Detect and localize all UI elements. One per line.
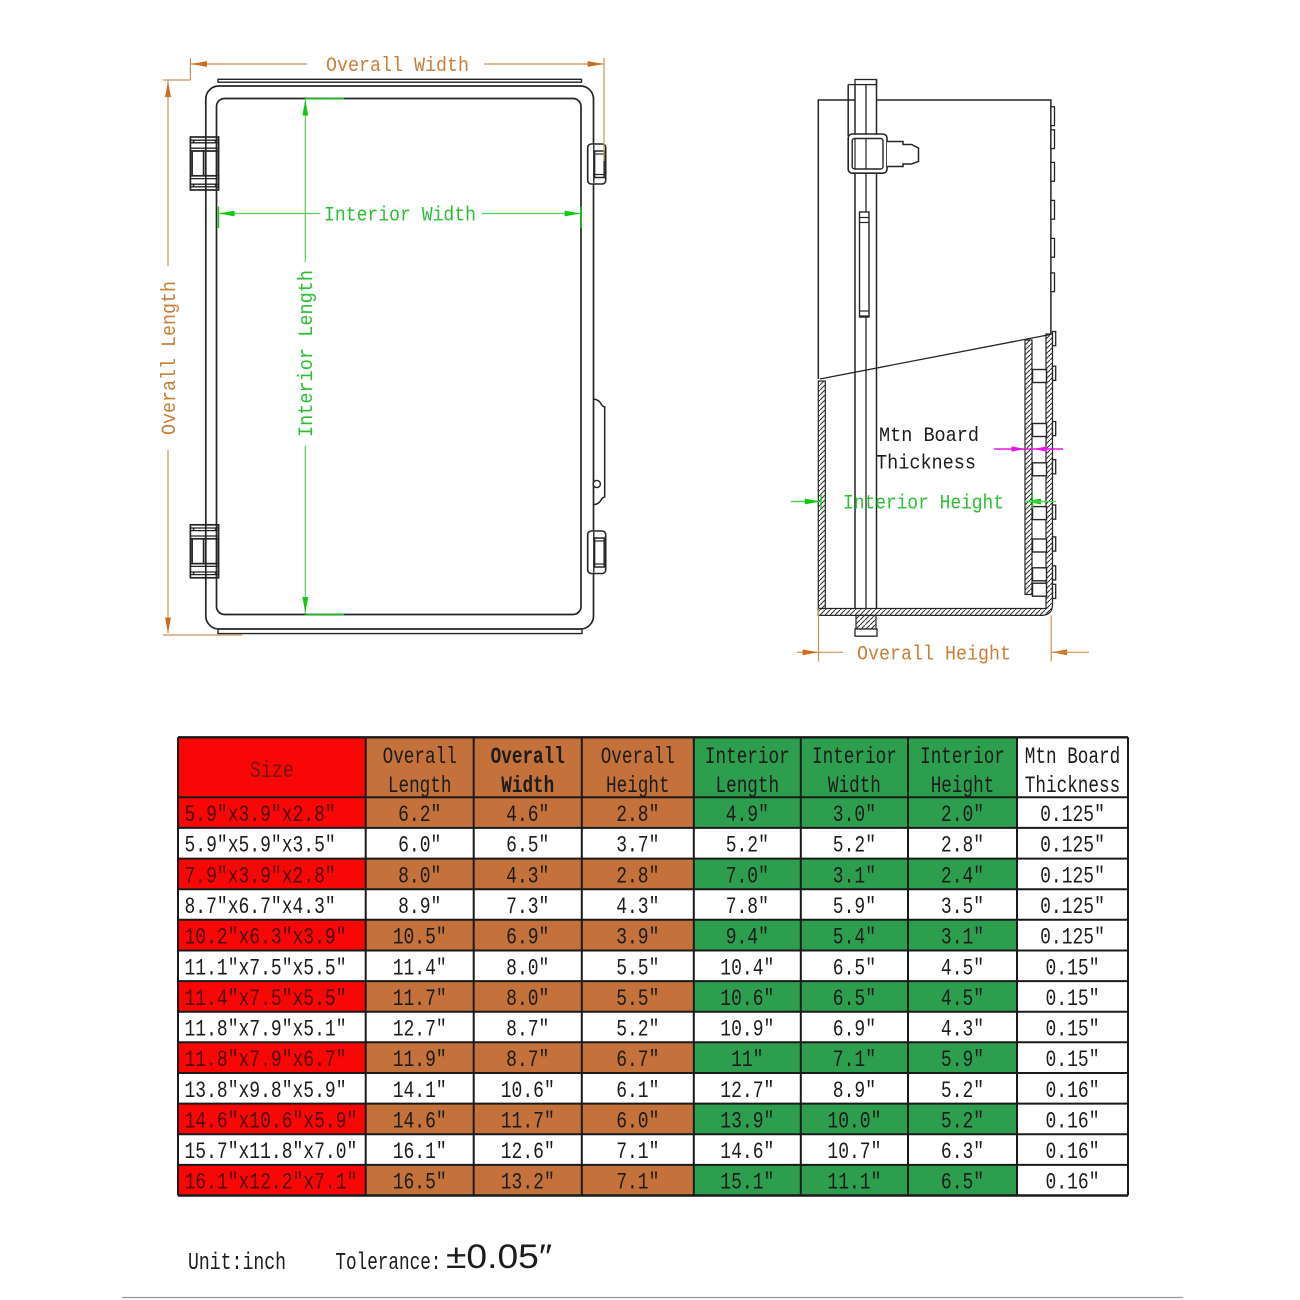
svg-text:Overall: Overall	[383, 744, 457, 770]
svg-text:7.0″: 7.0″	[726, 863, 769, 889]
svg-text:12.7″: 12.7″	[720, 1078, 774, 1104]
svg-text:16.1″: 16.1″	[393, 1139, 447, 1165]
svg-text:0.16″: 0.16″	[1046, 1108, 1100, 1134]
svg-text:Interior Height: Interior Height	[843, 493, 1004, 516]
svg-text:6.5″: 6.5″	[506, 833, 549, 859]
svg-text:Width: Width	[501, 773, 554, 799]
svg-text:4.6″: 4.6″	[506, 802, 549, 828]
svg-text:Mtn Board: Mtn Board	[879, 425, 979, 448]
svg-text:14.6″: 14.6″	[720, 1139, 774, 1165]
svg-text:5.9″x5.9″x3.5″: 5.9″x5.9″x3.5″	[185, 833, 336, 859]
svg-text:16.5″: 16.5″	[393, 1170, 447, 1196]
svg-text:2.4″: 2.4″	[941, 863, 984, 889]
svg-text:4.3″: 4.3″	[941, 1017, 984, 1043]
svg-text:0.125″: 0.125″	[1040, 802, 1105, 828]
svg-text:Interior: Interior	[705, 744, 790, 770]
svg-text:7.3″: 7.3″	[506, 894, 549, 920]
svg-text:10.7″: 10.7″	[827, 1139, 881, 1165]
svg-text:5.2″: 5.2″	[941, 1108, 984, 1134]
svg-text:11.1″x7.5″x5.5″: 11.1″x7.5″x5.5″	[185, 955, 347, 981]
svg-text:9.4″: 9.4″	[726, 925, 769, 951]
svg-text:Interior Width: Interior Width	[324, 205, 476, 228]
svg-text:±0.05″: ±0.05″	[446, 1238, 552, 1276]
svg-text:6.9″: 6.9″	[506, 925, 549, 951]
svg-text:5.2″: 5.2″	[833, 833, 876, 859]
svg-text:11″: 11″	[731, 1047, 763, 1073]
svg-text:6.5″: 6.5″	[941, 1170, 984, 1196]
svg-text:8.7″: 8.7″	[506, 1017, 549, 1043]
svg-text:16.1″x12.2″x7.1″: 16.1″x12.2″x7.1″	[185, 1170, 358, 1196]
svg-text:14.6″: 14.6″	[393, 1108, 447, 1134]
svg-text:6.5″: 6.5″	[833, 955, 876, 981]
svg-text:10.6″: 10.6″	[720, 986, 774, 1012]
svg-text:Overall Height: Overall Height	[857, 643, 1011, 666]
svg-text:7.8″: 7.8″	[726, 894, 769, 920]
svg-text:Overall Width: Overall Width	[326, 55, 469, 78]
svg-text:5.5″: 5.5″	[616, 986, 659, 1012]
svg-text:10.0″: 10.0″	[827, 1108, 881, 1134]
svg-text:8.7″x6.7″x4.3″: 8.7″x6.7″x4.3″	[185, 894, 336, 920]
svg-text:7.9″x3.9″x2.8″: 7.9″x3.9″x2.8″	[185, 863, 336, 889]
svg-text:10.6″: 10.6″	[501, 1078, 555, 1104]
svg-text:Tolerance:: Tolerance:	[335, 1250, 441, 1277]
svg-text:Mtn Board: Mtn Board	[1025, 744, 1120, 770]
svg-text:0.15″: 0.15″	[1046, 1047, 1100, 1073]
svg-text:6.3″: 6.3″	[941, 1139, 984, 1165]
svg-text:5.2″: 5.2″	[941, 1078, 984, 1104]
svg-text:3.9″: 3.9″	[616, 925, 659, 951]
svg-text:13.2″: 13.2″	[501, 1170, 555, 1196]
svg-text:Width: Width	[828, 773, 881, 799]
svg-text:0.15″: 0.15″	[1046, 986, 1100, 1012]
svg-text:0.125″: 0.125″	[1040, 833, 1105, 859]
svg-text:8.9″: 8.9″	[398, 894, 441, 920]
svg-text:Overall Length: Overall Length	[159, 281, 182, 435]
svg-text:11.4″: 11.4″	[393, 955, 447, 981]
svg-text:10.4″: 10.4″	[720, 955, 774, 981]
svg-text:2.0″: 2.0″	[941, 802, 984, 828]
svg-text:3.7″: 3.7″	[616, 833, 659, 859]
svg-text:Length: Length	[388, 773, 452, 799]
svg-text:2.8″: 2.8″	[941, 833, 984, 859]
svg-text:Overall: Overall	[491, 744, 565, 770]
svg-text:8.9″: 8.9″	[833, 1078, 876, 1104]
svg-text:5.9″x3.9″x2.8″: 5.9″x3.9″x2.8″	[185, 802, 336, 828]
svg-text:0.15″: 0.15″	[1046, 955, 1100, 981]
svg-text:11.7″: 11.7″	[501, 1108, 555, 1134]
svg-text:Overall: Overall	[601, 744, 675, 770]
svg-text:0.16″: 0.16″	[1046, 1078, 1100, 1104]
svg-text:5.9″: 5.9″	[941, 1047, 984, 1073]
svg-text:5.2″: 5.2″	[726, 833, 769, 859]
svg-text:15.1″: 15.1″	[720, 1170, 774, 1196]
svg-text:6.0″: 6.0″	[616, 1108, 659, 1134]
svg-text:6.0″: 6.0″	[398, 833, 441, 859]
svg-text:15.7″x11.8″x7.0″: 15.7″x11.8″x7.0″	[185, 1139, 358, 1165]
svg-text:Unit:inch: Unit:inch	[188, 1250, 286, 1277]
svg-text:Size: Size	[250, 758, 294, 784]
svg-text:13.9″: 13.9″	[720, 1108, 774, 1134]
svg-text:6.7″: 6.7″	[616, 1047, 659, 1073]
svg-text:5.9″: 5.9″	[833, 894, 876, 920]
svg-text:7.1″: 7.1″	[616, 1170, 659, 1196]
svg-text:13.8″x9.8″x5.9″: 13.8″x9.8″x5.9″	[185, 1078, 347, 1104]
svg-text:0.125″: 0.125″	[1040, 925, 1105, 951]
svg-text:3.1″: 3.1″	[941, 925, 984, 951]
svg-text:6.1″: 6.1″	[616, 1078, 659, 1104]
svg-text:11.9″: 11.9″	[393, 1047, 447, 1073]
svg-text:12.6″: 12.6″	[501, 1139, 555, 1165]
svg-text:Interior: Interior	[920, 744, 1005, 770]
svg-text:Interior: Interior	[812, 744, 897, 770]
svg-text:14.1″: 14.1″	[393, 1078, 447, 1104]
svg-text:Length: Length	[716, 773, 780, 799]
svg-text:0.125″: 0.125″	[1040, 863, 1105, 889]
svg-text:7.1″: 7.1″	[616, 1139, 659, 1165]
svg-text:0.16″: 0.16″	[1046, 1170, 1100, 1196]
svg-text:6.9″: 6.9″	[833, 1017, 876, 1043]
svg-text:11.7″: 11.7″	[393, 986, 447, 1012]
svg-text:11.1″: 11.1″	[827, 1170, 881, 1196]
svg-text:14.6″x10.6″x5.9″: 14.6″x10.6″x5.9″	[185, 1108, 358, 1134]
svg-text:8.7″: 8.7″	[506, 1047, 549, 1073]
svg-text:Thickness: Thickness	[876, 453, 976, 476]
svg-text:11.8″x7.9″x6.7″: 11.8″x7.9″x6.7″	[185, 1047, 347, 1073]
svg-text:4.5″: 4.5″	[941, 986, 984, 1012]
svg-text:6.2″: 6.2″	[398, 802, 441, 828]
svg-text:0.125″: 0.125″	[1040, 894, 1105, 920]
svg-text:2.8″: 2.8″	[616, 863, 659, 889]
svg-text:8.0″: 8.0″	[506, 955, 549, 981]
svg-text:12.7″: 12.7″	[393, 1017, 447, 1043]
svg-text:2.8″: 2.8″	[616, 802, 659, 828]
svg-text:8.0″: 8.0″	[398, 863, 441, 889]
svg-text:0.15″: 0.15″	[1046, 1017, 1100, 1043]
svg-text:4.9″: 4.9″	[726, 802, 769, 828]
svg-text:10.2″x6.3″x3.9″: 10.2″x6.3″x3.9″	[185, 925, 347, 951]
svg-text:5.2″: 5.2″	[616, 1017, 659, 1043]
svg-text:3.5″: 3.5″	[941, 894, 984, 920]
svg-text:4.5″: 4.5″	[941, 955, 984, 981]
svg-text:0.16″: 0.16″	[1046, 1139, 1100, 1165]
svg-text:5.5″: 5.5″	[616, 955, 659, 981]
svg-text:5.4″: 5.4″	[833, 925, 876, 951]
svg-text:3.0″: 3.0″	[833, 802, 876, 828]
svg-text:7.1″: 7.1″	[833, 1047, 876, 1073]
svg-text:4.3″: 4.3″	[506, 863, 549, 889]
svg-text:10.5″: 10.5″	[393, 925, 447, 951]
svg-text:Height: Height	[606, 773, 670, 799]
svg-text:6.5″: 6.5″	[833, 986, 876, 1012]
svg-text:8.0″: 8.0″	[506, 986, 549, 1012]
svg-text:11.8″x7.9″x5.1″: 11.8″x7.9″x5.1″	[185, 1017, 347, 1043]
svg-text:10.9″: 10.9″	[720, 1017, 774, 1043]
svg-text:4.3″: 4.3″	[616, 894, 659, 920]
svg-text:Height: Height	[931, 773, 995, 799]
svg-text:Interior Length: Interior Length	[296, 270, 319, 437]
svg-text:Thickness: Thickness	[1025, 773, 1120, 799]
svg-text:11.4″x7.5″x5.5″: 11.4″x7.5″x5.5″	[185, 986, 347, 1012]
svg-text:3.1″: 3.1″	[833, 863, 876, 889]
